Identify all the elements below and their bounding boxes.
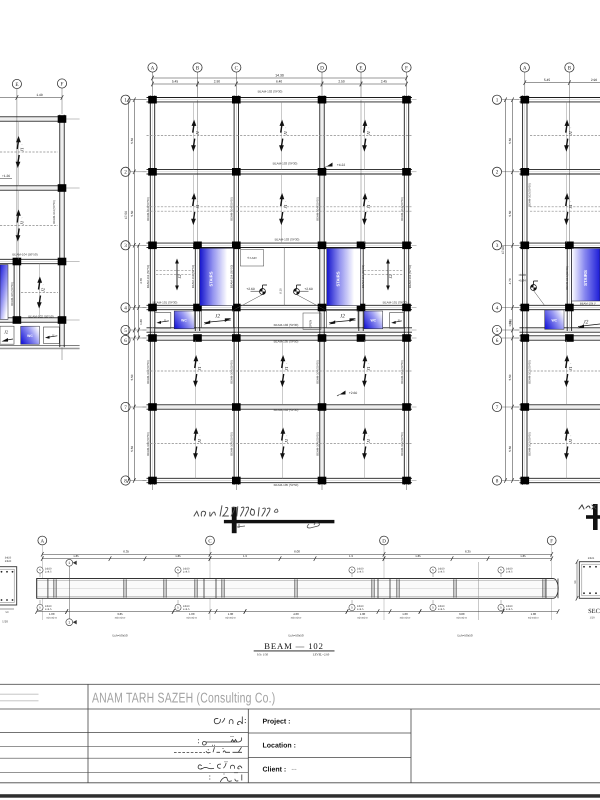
svg-text:⌐: ⌐ [570, 363, 572, 365]
svg-text:BEAM-102 (SP30): BEAM-102 (SP30) [274, 323, 299, 327]
svg-text:⌐: ⌐ [21, 144, 23, 146]
svg-text:6.35: 6.35 [465, 550, 471, 554]
svg-text:1.80: 1.80 [139, 319, 143, 325]
svg-text:8@10@10: 8@10@10 [225, 617, 236, 620]
svg-text:R: R [52, 334, 54, 337]
svg-text:⌐: ⌐ [21, 218, 23, 220]
svg-text:⌐: ⌐ [43, 285, 45, 287]
svg-text:F: F [550, 538, 553, 544]
svg-text:BEAM-104 (50*50): BEAM-104 (50*50) [146, 265, 150, 289]
svg-text:C: C [235, 65, 239, 71]
svg-text:17.50: 17.50 [124, 211, 128, 219]
svg-text:J2: J2 [340, 314, 345, 320]
svg-text:+2.60: +2.60 [349, 391, 358, 395]
svg-text:J1: J1 [195, 204, 200, 208]
svg-text:17.00: 17.00 [501, 246, 505, 254]
svg-text:4: 4 [124, 305, 127, 311]
svg-text:F: F [405, 65, 408, 71]
svg-text:J1: J1 [197, 439, 202, 443]
svg-text:6: 6 [124, 338, 127, 344]
svg-text:⌐: ⌐ [286, 436, 288, 438]
svg-text:BEAM — 102: BEAM — 102 [264, 641, 324, 651]
svg-text:J1: J1 [366, 131, 371, 135]
svg-text:8@10@10: 8@10@10 [456, 617, 467, 620]
svg-text:⌐: ⌐ [285, 201, 287, 203]
svg-text:3: 3 [496, 243, 499, 249]
svg-text:BEAM-104 (50*50): BEAM-104 (50*50) [408, 265, 412, 289]
svg-text:J1: J1 [283, 204, 288, 208]
svg-text:BEAM-101 (SP30): BEAM-101 (SP30) [383, 301, 408, 305]
svg-text:B: B [196, 65, 200, 71]
svg-text:F: F [61, 81, 64, 87]
svg-text:2.50: 2.50 [338, 79, 344, 83]
svg-text:8@10@10: 8@10@10 [528, 617, 539, 620]
svg-text:8@10@10: 8@10@10 [186, 617, 197, 620]
svg-text:5.50: 5.50 [130, 138, 134, 144]
svg-text:Client :: Client : [263, 766, 287, 774]
svg-text:BEAM-104 (50*50): BEAM-104 (50*50) [400, 360, 404, 384]
svg-text:BEAM-104 (*: BEAM-104 (* [580, 302, 597, 306]
svg-text:3Φ25: 3Φ25 [588, 557, 595, 560]
svg-text:Ech=50x50: Ech=50x50 [112, 634, 127, 638]
svg-text:WC: WC [181, 319, 187, 323]
svg-text:J1: J1 [568, 204, 573, 208]
svg-text:4.70: 4.70 [139, 278, 143, 284]
svg-text:8@10@10: 8@10@10 [115, 617, 126, 620]
svg-text:BEAM-104 (50*50): BEAM-104 (50*50) [12, 252, 37, 256]
svg-text:5: 5 [124, 328, 127, 334]
svg-text:ST.AIR: ST.AIR [247, 256, 257, 260]
svg-text:OPEN: OPEN [309, 320, 313, 329]
svg-text:BEAM-104 (50*50): BEAM-104 (50*50) [146, 432, 150, 456]
svg-text:BEAM-104 (50*50): BEAM-104 (50*50) [315, 360, 319, 384]
svg-text:5.45: 5.45 [172, 79, 178, 83]
svg-text:J1: J1 [19, 147, 24, 151]
svg-text:1.00: 1.00 [531, 612, 537, 616]
svg-text:BEAM-104 (50*50): BEAM-104 (50*50) [230, 360, 234, 384]
svg-text:5.50: 5.50 [130, 446, 134, 452]
svg-text:BEAM-104 (50*50): BEAM-104 (50*50) [146, 360, 150, 384]
svg-text:1.00: 1.00 [228, 612, 234, 616]
svg-text:8: 8 [496, 478, 499, 484]
svg-text:BEAM-103 (50*50): BEAM-103 (50*50) [528, 432, 532, 456]
svg-text:D: D [320, 65, 324, 71]
svg-text:⌐: ⌐ [368, 436, 370, 438]
svg-text:3.80: 3.80 [459, 612, 465, 616]
svg-text:BEAM-101 (SP30): BEAM-101 (SP30) [153, 301, 178, 305]
svg-text:1/20: 1/20 [590, 617, 596, 620]
svg-text:L=4.5: L=4.5 [183, 570, 190, 573]
svg-text:BEAM-104 (50*50): BEAM-104 (50*50) [230, 265, 234, 289]
svg-text:8@10@10: 8@10@10 [357, 617, 368, 620]
svg-text:A: A [151, 65, 155, 71]
svg-text:2.45: 2.45 [381, 79, 387, 83]
svg-text:⌐: ⌐ [368, 128, 370, 130]
svg-text:1.85: 1.85 [73, 554, 79, 558]
svg-text:2.90: 2.90 [591, 78, 597, 82]
svg-text:+2.60: +2.60 [304, 287, 313, 291]
svg-text:1.00: 1.00 [189, 612, 195, 616]
svg-text:⌐: ⌐ [197, 201, 199, 203]
svg-text:BEAM-104 (50*50): BEAM-104 (50*50) [315, 432, 319, 456]
svg-text:1.85: 1.85 [415, 554, 421, 558]
svg-text:⌐: ⌐ [286, 363, 288, 365]
svg-text:R: R [164, 319, 166, 322]
svg-text:J2: J2 [215, 314, 220, 320]
svg-text:6.00: 6.00 [294, 550, 300, 554]
svg-text:Location :: Location : [263, 742, 296, 750]
svg-text:J1: J1 [197, 366, 202, 370]
svg-text:⌐: ⌐ [368, 201, 370, 203]
svg-text:R: R [398, 319, 400, 322]
svg-text:E: E [15, 82, 18, 88]
svg-text:J1: J1 [284, 439, 289, 443]
svg-text:1.00: 1.00 [360, 612, 366, 616]
svg-text:Project :: Project : [263, 718, 291, 726]
svg-text:BEAM-104 (50*50): BEAM-104 (50*50) [400, 432, 404, 456]
svg-text:J1: J1 [568, 131, 573, 135]
svg-text:J1: J1 [195, 131, 200, 135]
svg-text:2: 2 [496, 170, 499, 176]
svg-text:7: 7 [124, 405, 127, 411]
svg-text:3: 3 [124, 243, 127, 249]
svg-text:J1: J1 [366, 204, 371, 208]
svg-text:WC: WC [551, 319, 557, 323]
svg-text:+5.84: +5.84 [518, 279, 526, 283]
svg-text:B: B [568, 65, 572, 71]
svg-text:BEAM-104 (50*50): BEAM-104 (50*50) [315, 197, 319, 221]
svg-text:L=4.5: L=4.5 [357, 608, 364, 611]
svg-text:BEAM-103 (50*50): BEAM-103 (50*50) [528, 360, 532, 384]
svg-text:0.5c 1/50: 0.5c 1/50 [257, 652, 269, 656]
svg-text:BEAM-104 (50*50): BEAM-104 (50*50) [191, 265, 195, 289]
svg-text:8@10@10: 8@10@10 [291, 617, 302, 620]
svg-text:BEAM-104 (50*50): BEAM-104 (50*50) [230, 197, 234, 221]
svg-text:+2.60: +2.60 [246, 287, 255, 291]
svg-text:5.50: 5.50 [130, 374, 134, 380]
svg-text:⌐: ⌐ [197, 128, 199, 130]
svg-text:L=4.5: L=4.5 [438, 608, 445, 611]
svg-text:5.50: 5.50 [508, 210, 512, 216]
svg-text:⌐: ⌐ [199, 436, 201, 438]
svg-text:⌐: ⌐ [199, 363, 201, 365]
svg-text:BEAM-104 (50*50): BEAM-104 (50*50) [230, 432, 234, 456]
svg-text:6.40: 6.40 [276, 79, 282, 83]
svg-text:STAIRS: STAIRS [583, 270, 588, 286]
svg-text:J2: J2 [41, 287, 46, 292]
svg-text:STAIRS: STAIRS [209, 271, 214, 286]
svg-text:⌐: ⌐ [570, 128, 572, 130]
svg-text:BEAM-103 (50*50): BEAM-103 (50*50) [528, 183, 532, 207]
svg-text:4: 4 [496, 305, 499, 311]
svg-text:J1: J1 [366, 366, 371, 370]
svg-text:J1: J1 [283, 131, 288, 135]
svg-text:1.80: 1.80 [509, 319, 513, 325]
svg-text:BEAM-102 (SP30): BEAM-102 (SP30) [274, 408, 299, 412]
svg-text:1: 1 [68, 621, 70, 625]
svg-text:J1: J1 [568, 366, 573, 370]
svg-text:STAIRS: STAIRS [336, 271, 341, 286]
svg-text:E: E [359, 65, 362, 71]
svg-text:50: 50 [574, 580, 577, 583]
svg-text:---: --- [292, 767, 297, 773]
svg-text:⌐: ⌐ [368, 363, 370, 365]
svg-text:BEAM-104 (50*50): BEAM-104 (50*50) [52, 200, 56, 224]
svg-text:6: 6 [496, 338, 499, 344]
svg-text:1.9: 1.9 [349, 554, 353, 558]
svg-text:L=4.5: L=4.5 [438, 570, 445, 573]
svg-text:1: 1 [496, 98, 499, 104]
svg-text:A: A [523, 65, 527, 71]
svg-text:1.40: 1.40 [36, 93, 42, 97]
svg-text:50: 50 [6, 611, 9, 614]
svg-text:Ech=50x50: Ech=50x50 [288, 634, 303, 638]
svg-text:1.85: 1.85 [520, 554, 526, 558]
svg-text:L=4.5: L=4.5 [45, 570, 52, 573]
svg-text:3.85: 3.85 [117, 612, 123, 616]
svg-text:BEAM-105 (SP50): BEAM-105 (SP50) [274, 340, 299, 344]
svg-text:1.00: 1.00 [402, 612, 408, 616]
svg-text:L=4.5: L=4.5 [506, 608, 513, 611]
svg-text:L=4.5: L=4.5 [506, 570, 513, 573]
svg-text:5.45: 5.45 [544, 78, 550, 82]
svg-text:8@10@10: 8@10@10 [400, 617, 411, 620]
svg-text:J2: J2 [4, 330, 9, 335]
svg-text:L=4.5: L=4.5 [357, 570, 364, 573]
svg-text:1: 1 [68, 561, 70, 565]
svg-text:3Φ20: 3Φ20 [5, 560, 12, 563]
svg-text:8@10@10: 8@10@10 [46, 617, 57, 620]
svg-text:WC: WC [370, 319, 376, 323]
svg-text:WC: WC [27, 334, 33, 338]
svg-text:5.50: 5.50 [130, 210, 134, 216]
svg-text:BEAM-102 (50*50): BEAM-102 (50*50) [28, 315, 53, 319]
svg-text:4.00: 4.00 [293, 612, 299, 616]
svg-text:Ech=50x50: Ech=50x50 [457, 634, 472, 638]
svg-text:J2: J2 [177, 274, 182, 279]
svg-text:4.70: 4.70 [508, 278, 512, 284]
svg-text:1.85: 1.85 [175, 554, 181, 558]
svg-text:J1: J1 [284, 366, 289, 370]
svg-text:⌐: ⌐ [285, 128, 287, 130]
svg-text:BEAM-105 (50*50): BEAM-105 (50*50) [10, 282, 14, 306]
svg-text:8.10: 8.10 [279, 288, 283, 294]
svg-text:SEC: SEC [588, 608, 600, 615]
svg-text:BEAM-104 (50*50): BEAM-104 (50*50) [361, 265, 365, 289]
svg-text:5: 5 [496, 328, 499, 334]
svg-text:1/20: 1/20 [2, 620, 8, 624]
svg-text:⌐: ⌐ [570, 201, 572, 203]
svg-text:1.00: 1.00 [49, 612, 55, 616]
svg-text:5.50: 5.50 [508, 138, 512, 144]
svg-text:L=4.5: L=4.5 [183, 608, 190, 611]
svg-text:A: A [40, 538, 44, 544]
svg-text:J1: J1 [366, 439, 371, 443]
svg-text:J1: J1 [19, 221, 24, 225]
svg-text:2.90: 2.90 [214, 79, 220, 83]
svg-text:7: 7 [496, 405, 499, 411]
svg-text:BEAM-104 (50*50): BEAM-104 (50*50) [146, 197, 150, 221]
svg-text:L=4.5: L=4.5 [45, 608, 52, 611]
svg-text:D: D [382, 538, 386, 544]
svg-text:BEAM-103 (SP30): BEAM-103 (SP30) [275, 237, 300, 241]
svg-text:J2: J2 [583, 320, 588, 326]
svg-text:⌐: ⌐ [570, 436, 572, 438]
svg-text:1.9: 1.9 [243, 554, 247, 558]
svg-text:BEAM-105 (SP50): BEAM-105 (SP50) [274, 483, 299, 487]
svg-text:BEAM-103 (SP30): BEAM-103 (SP30) [273, 162, 298, 166]
svg-text:6.35: 6.35 [123, 550, 129, 554]
svg-text:2: 2 [124, 170, 127, 176]
svg-text:+4.22: +4.22 [337, 163, 346, 167]
svg-text:8: 8 [124, 478, 127, 484]
svg-text:5.50: 5.50 [508, 374, 512, 380]
svg-text:5.50: 5.50 [508, 446, 512, 452]
svg-text:BEAM-104 (50*50): BEAM-104 (50*50) [400, 197, 404, 221]
svg-text:J2: J2 [388, 274, 393, 279]
svg-text:1: 1 [124, 98, 127, 104]
svg-text:BEAM-102 (SP30): BEAM-102 (SP30) [258, 89, 283, 93]
svg-text:LEVEL=2.60: LEVEL=2.60 [313, 652, 330, 656]
svg-text:+8.08: +8.08 [518, 273, 526, 277]
svg-text:J1: J1 [568, 439, 573, 443]
svg-text:+1.26: +1.26 [2, 174, 10, 178]
svg-text:14.30: 14.30 [275, 73, 284, 77]
svg-text:ANAM TARH SAZEH (Consulting Co: ANAM TARH SAZEH (Consulting Co.) [92, 690, 275, 706]
svg-text:BEAM-104 (50*45): BEAM-104 (50*45) [565, 266, 569, 290]
